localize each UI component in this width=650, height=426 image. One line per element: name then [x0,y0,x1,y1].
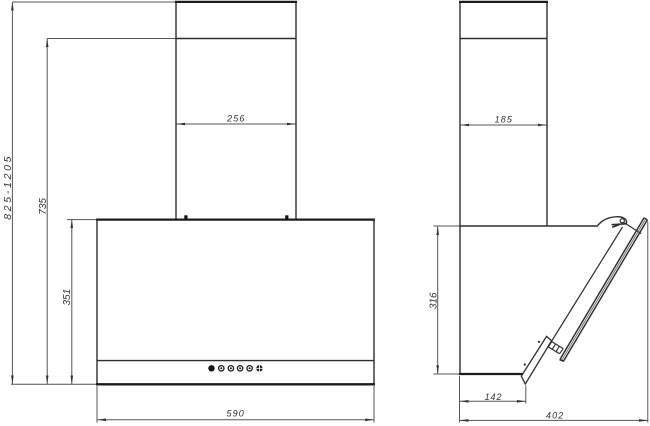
svg-text:185: 185 [495,114,513,124]
svg-text:351: 351 [62,289,73,306]
svg-text:402: 402 [546,410,564,420]
svg-text:256: 256 [226,113,245,123]
svg-text:590: 590 [227,409,245,419]
svg-text:825-1205: 825-1205 [2,154,14,220]
svg-text:142: 142 [485,392,503,402]
svg-text:316: 316 [429,292,440,309]
svg-text:735: 735 [38,198,49,215]
